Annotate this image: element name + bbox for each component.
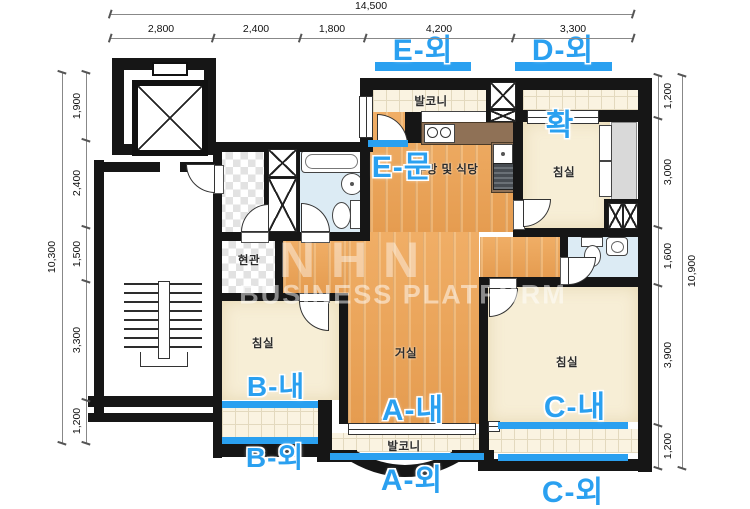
balcony-bottom-label: 발코니 xyxy=(387,438,420,454)
dim-line xyxy=(658,75,659,468)
dim-top-seg: 4,200 xyxy=(426,23,452,35)
sink2-icon xyxy=(606,237,628,256)
floorplan-canvas: 발코니 주방 및 식당 침실 현관 침실 거실 침실 발코니 E-외 D-외 E… xyxy=(0,0,750,509)
shaft-x-icon xyxy=(268,178,297,232)
wall xyxy=(360,142,370,241)
wall xyxy=(88,396,218,407)
balcony-b-floor xyxy=(222,408,318,438)
wall xyxy=(513,112,523,205)
door-gap xyxy=(241,232,269,243)
balcony-top-label: 발코니 xyxy=(414,93,447,109)
dim-line xyxy=(62,72,63,443)
balcony-d-floor xyxy=(523,90,640,110)
annotation-hwak: 확 xyxy=(546,100,575,144)
stairs-icon xyxy=(166,283,202,355)
balcony-c-floor xyxy=(488,429,638,453)
elevator-counterweight xyxy=(152,62,188,76)
dim-line xyxy=(86,72,87,443)
annotation-e-door: E-문 xyxy=(372,142,433,186)
dim-right-total: 10,900 xyxy=(686,255,698,287)
shaft-x-icon xyxy=(490,110,516,122)
toilet-icon xyxy=(332,202,351,229)
wall xyxy=(638,78,652,472)
shaft-x-icon xyxy=(490,82,516,109)
dim-left-seg: 1,900 xyxy=(71,93,83,119)
dim-line xyxy=(110,38,633,39)
dim-right-seg: 3,000 xyxy=(662,159,674,185)
dim-right-seg: 1,600 xyxy=(662,243,674,269)
entrance-label: 현관 xyxy=(238,252,260,268)
elevator-car-icon xyxy=(132,80,208,156)
annotation-b-in: B-내 xyxy=(247,365,305,405)
shaft-x-icon xyxy=(268,149,297,177)
highlight-bar-c-out xyxy=(498,454,628,461)
bedroom-left-label: 침실 xyxy=(252,335,274,351)
shaft-x-icon xyxy=(608,203,623,229)
dim-top-seg: 3,300 xyxy=(560,23,586,35)
wall xyxy=(88,413,218,422)
dim-right-seg: 1,200 xyxy=(662,433,674,459)
closet-door-panel xyxy=(599,125,612,161)
dim-left-seg: 2,400 xyxy=(71,170,83,196)
dim-right-seg: 1,200 xyxy=(662,83,674,109)
dim-left-seg: 3,300 xyxy=(71,327,83,353)
stairs-icon xyxy=(124,283,160,355)
annotation-c-in: C-내 xyxy=(544,382,606,426)
window xyxy=(359,96,373,138)
dim-line xyxy=(682,75,683,468)
wall xyxy=(339,293,348,424)
annotation-c-out: C-외 xyxy=(542,467,604,509)
bedroom-top-right-label: 침실 xyxy=(553,164,575,180)
closet xyxy=(611,122,637,200)
bathtub-icon xyxy=(301,150,363,173)
dim-left-seg: 1,200 xyxy=(71,408,83,434)
stove-icon xyxy=(424,124,455,143)
kitchen-sink-icon xyxy=(493,144,513,164)
dim-right-seg: 3,900 xyxy=(662,342,674,368)
closet-door-panel xyxy=(599,161,612,197)
living-label: 거실 xyxy=(395,345,417,361)
dim-left-seg: 1,500 xyxy=(71,241,83,267)
wall xyxy=(94,160,104,422)
bedroom-right-label: 침실 xyxy=(556,354,578,370)
annotation-a-in: A-내 xyxy=(382,385,444,429)
dim-top-total: 14,500 xyxy=(355,0,387,12)
stairs-landing xyxy=(140,352,188,367)
hall-right-floor xyxy=(480,237,560,277)
stairs-divider xyxy=(158,281,170,359)
shaft-x-icon xyxy=(623,203,638,229)
dim-top-seg: 2,800 xyxy=(148,23,174,35)
annotation-a-out: A-외 xyxy=(381,455,443,499)
dim-top-seg: 1,800 xyxy=(319,23,345,35)
dim-line xyxy=(110,14,633,15)
dim-left-total: 10,300 xyxy=(46,241,58,273)
entry-door-arc xyxy=(186,164,215,193)
annotation-b-out: B-외 xyxy=(246,436,304,476)
wall xyxy=(104,162,160,172)
watermark-text: BUSINESS PLATFORM xyxy=(239,280,567,311)
dim-top-seg: 2,400 xyxy=(243,23,269,35)
refrigerator-icon xyxy=(493,163,514,190)
